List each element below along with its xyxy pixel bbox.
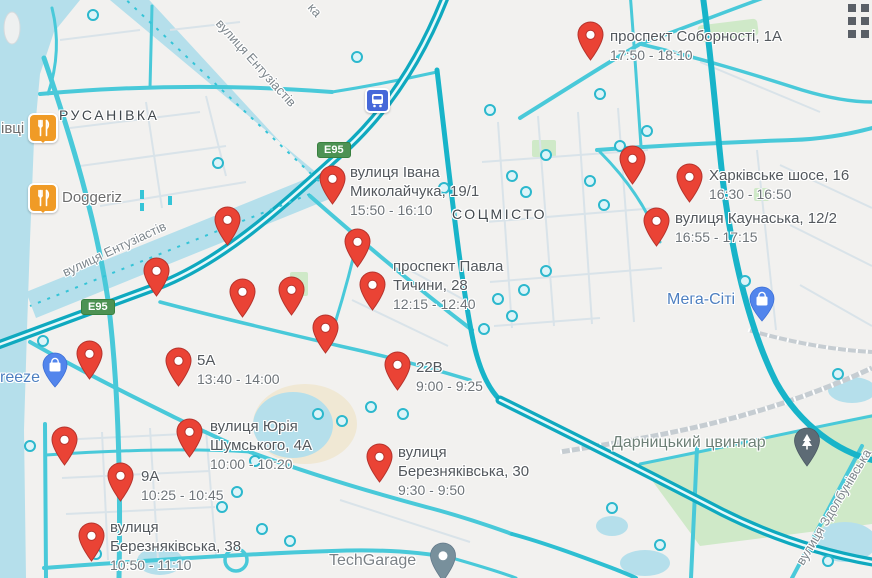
marker-time: 12:15 - 12:40 [393,296,503,313]
marker-label-9a: 9А 10:25 - 10:45 [141,467,224,504]
marker-label-berezniakivska-38: вулиця Березняківська, 38 10:50 - 11:10 [110,518,241,574]
marker-unlabeled[interactable] [214,206,241,246]
marker-22v[interactable] [384,351,411,391]
marker-title: проспект Соборності, 1А [610,27,782,46]
marker-time: 15:50 - 16:10 [350,202,479,219]
marker-label-kaunaska: вулиця Каунаська, 12/2 16:55 - 17:15 [675,209,837,246]
dot-icon [429,542,457,578]
poi-label-freeze-partial: reeze [0,369,40,387]
marker-mykolaichuka[interactable] [319,165,346,205]
poi-label-darnytsky-cemetery: Дарницький цвинтар [612,434,766,452]
marker-title: Харківське шосе, 16 [709,166,849,185]
marker-label-shumskoho: вулиця Юрія Шумського, 4А 10:00 - 10:20 [210,417,312,473]
marker-title: 22В [416,358,483,377]
marker-title: вулиця Березняківська, 38 [110,518,241,556]
metro-station-icon[interactable] [365,88,390,113]
marker-time: 10:50 - 11:10 [110,557,241,574]
shopping-poi-pin-freeze[interactable] [42,352,68,393]
marker-berezniakivska-38[interactable] [78,522,105,562]
marker-5a[interactable] [165,347,192,387]
marker-label-22v: 22В 9:00 - 9:25 [416,358,483,395]
marker-shumskoho[interactable] [176,418,203,458]
train-icon [367,90,388,111]
shopping-poi-pin-mega-city[interactable] [749,286,775,327]
marker-label-kharkivske-shose: Харківське шосе, 16 16:30 - 16:50 [709,166,849,203]
marker-label-mykolaichuka: вулиця Івана Миколайчука, 19/1 15:50 - 1… [350,163,479,219]
shopping-bag-icon [42,352,68,388]
marker-unlabeled[interactable] [143,257,170,297]
marker-title: вулиця Каунаська, 12/2 [675,209,837,228]
restaurant-icon-doggeriz[interactable] [28,183,58,213]
marker-9a[interactable] [107,462,134,502]
marker-title: 9А [141,467,224,486]
marker-title: вулиця Березняківська, 30 [398,443,529,481]
marker-title: проспект Павла Тичини, 28 [393,257,503,295]
marker-unlabeled[interactable] [619,145,646,185]
route-badge-e95-left: E95 [81,299,115,315]
marker-tychyny[interactable] [359,271,386,311]
marker-time: 10:25 - 10:45 [141,487,224,504]
marker-time: 16:30 - 16:50 [709,186,849,203]
techgarage-poi-pin[interactable] [429,542,457,578]
shopping-bag-icon [749,286,775,322]
marker-title: вулиця Юрія Шумського, 4А [210,417,312,455]
cemetery-poi-pin[interactable] [793,427,821,472]
marker-time: 9:00 - 9:25 [416,378,483,395]
marker-kharkivske-shose[interactable] [676,163,703,203]
marker-time: 9:30 - 9:50 [398,482,529,499]
marker-time: 10:00 - 10:20 [210,456,312,473]
fork-knife-icon [30,115,56,141]
marker-label-berezniakivska-30: вулиця Березняківська, 30 9:30 - 9:50 [398,443,529,499]
marker-title: вулиця Івана Миколайчука, 19/1 [350,163,479,201]
area-label-rusanivka: РУСАНІВКА [59,107,159,123]
marker-label-5a: 5А 13:40 - 14:00 [197,351,280,388]
marker-unlabeled[interactable] [229,278,256,318]
marker-time: 17:50 - 18:10 [610,47,782,64]
marker-label-tychyny: проспект Павла Тичини, 28 12:15 - 12:40 [393,257,503,313]
marker-time: 13:40 - 14:00 [197,371,280,388]
marker-unlabeled[interactable] [344,228,371,268]
marker-unlabeled[interactable] [312,314,339,354]
marker-time: 16:55 - 17:15 [675,229,837,246]
poi-label-techgarage: TechGarage [329,552,416,570]
marker-label-sobornosti: проспект Соборності, 1А 17:50 - 18:10 [610,27,782,64]
marker-berezniakivska-30[interactable] [366,443,393,483]
marker-kaunaska[interactable] [643,207,670,247]
marker-unlabeled[interactable] [51,426,78,466]
poi-label-mega-city: Мега-Сіті [667,291,735,309]
restaurant-icon[interactable] [28,113,58,143]
marker-sobornosti[interactable] [577,21,604,61]
fork-knife-icon [30,185,56,211]
marker-unlabeled[interactable] [278,276,305,316]
poi-label-doggeriz: Doggeriz [62,189,122,206]
marker-unlabeled[interactable] [76,340,103,380]
poi-label-partial: івці [1,120,24,137]
map-viewport[interactable]: РУСАНІВКА СОЦМІСТО вулиця Ентузіастів ву… [0,0,872,578]
marker-title: 5А [197,351,280,370]
route-badge-e95-top: E95 [317,142,351,158]
tree-icon [793,427,821,467]
